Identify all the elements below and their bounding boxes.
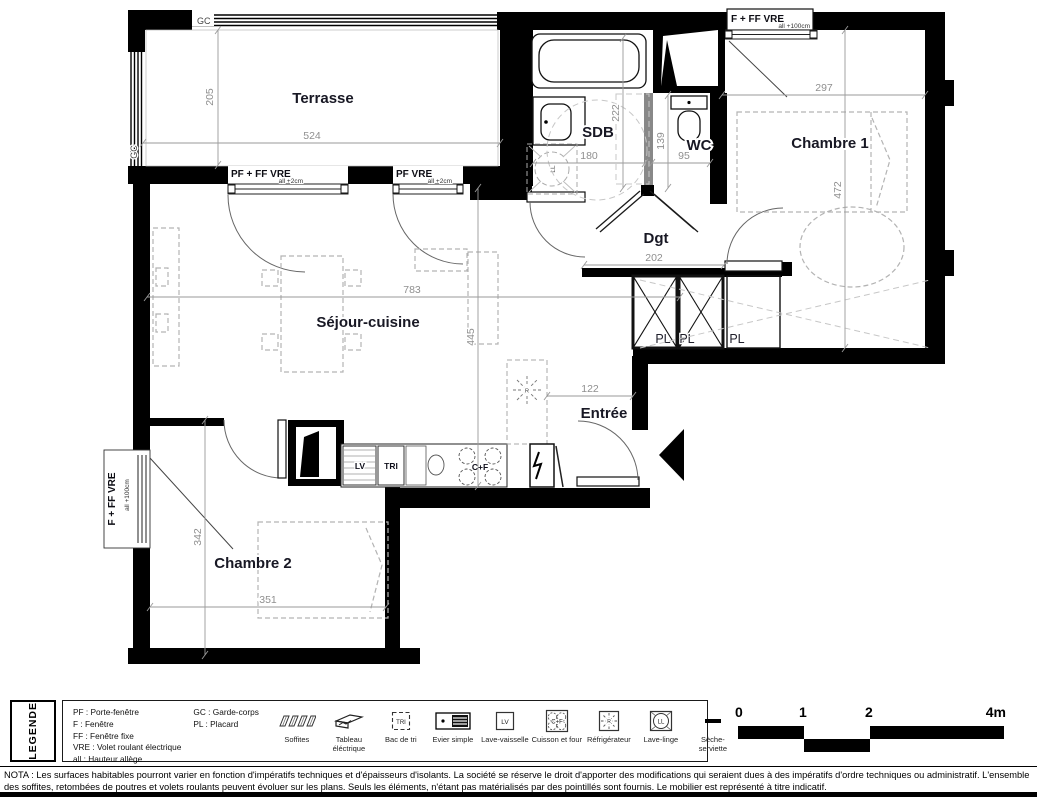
svg-text:LV: LV: [501, 719, 509, 726]
svg-text:342: 342: [192, 528, 204, 546]
dishwasher-icon: LV: [495, 708, 515, 733]
bottom-border: [0, 792, 1037, 797]
legend-title: LEGENDE: [27, 702, 39, 760]
stove-oven-icon: C+F: [545, 708, 569, 733]
room-label-wc: WC: [687, 137, 712, 154]
svg-text:139: 139: [655, 132, 667, 150]
bathtub: [532, 34, 646, 88]
legend-item-soffites: Soffites: [271, 708, 323, 744]
scale-segment: [738, 726, 804, 739]
sink-icon: [435, 708, 471, 733]
door-entree: [577, 421, 639, 486]
legend-item-tri: TRI Bac de tri: [375, 708, 427, 744]
svg-text:783: 783: [403, 284, 421, 296]
scale-tick-0: 0: [735, 704, 743, 720]
legend-item-tableau: Tableau éléctrique: [323, 708, 375, 753]
entrance-arrow: [659, 429, 684, 481]
room-label-sdb: SDB: [582, 124, 614, 141]
svg-text:F + FF VRE: F + FF VRE: [731, 14, 784, 25]
room-label-sejour: Séjour-cuisine: [316, 314, 419, 331]
scale-tick-4m: 4m: [986, 704, 1006, 720]
washer-sdb: LL: [527, 144, 577, 194]
floor-plan: GC GC PF + FF VRE all +2cm PF VRE all +2…: [0, 0, 1037, 698]
electrical-panel-icon: [334, 708, 364, 733]
scale-bar: 0 1 2 4m: [738, 704, 1004, 756]
svg-text:R: R: [607, 719, 611, 725]
door-sdb: [527, 192, 585, 257]
scale-tick-2: 2: [865, 704, 873, 720]
chambre1-furniture: [640, 112, 930, 348]
svg-text:all +100cm: all +100cm: [124, 479, 131, 511]
pl-label-3: PL: [729, 332, 744, 346]
legend-item-cuisson: C+F Cuisson et four: [531, 708, 583, 744]
svg-text:R: R: [525, 389, 529, 395]
svg-text:351: 351: [259, 594, 277, 606]
nota-text: NOTA : Les surfaces habitables pourront …: [4, 770, 1034, 794]
room-label-terrasse: Terrasse: [292, 90, 353, 107]
washing-machine-icon: LL: [649, 708, 673, 733]
svg-text:TRI: TRI: [396, 720, 406, 726]
cooktop-label: C+F: [472, 462, 488, 472]
svg-text:122: 122: [581, 383, 599, 395]
dishwasher-label: LV: [355, 461, 366, 471]
svg-text:222: 222: [610, 104, 622, 122]
room-label-chambre2: Chambre 2: [214, 555, 292, 572]
legend-title-box: LEGENDE: [10, 700, 56, 762]
gc-left-label: GC: [129, 145, 139, 159]
nota-line-1: NOTA : Les surfaces habitables pourront …: [4, 770, 1034, 782]
scale-tick-1: 1: [799, 704, 807, 720]
svg-text:445: 445: [465, 328, 477, 346]
recycling-label: TRI: [384, 461, 398, 471]
fridge: R: [507, 360, 547, 444]
soffites-icon: [278, 708, 316, 733]
sejour-furniture: [153, 228, 498, 372]
svg-text:C+F: C+F: [551, 719, 563, 725]
towel-dryer-icon: [705, 708, 721, 733]
legend-item-lv: LV Lave-vaisselle: [479, 708, 531, 744]
legend-item-lavelinge: LL Lave-linge: [635, 708, 687, 744]
legend-item-seche: Sèche-serviette: [687, 708, 739, 753]
svg-text:all +2cm: all +2cm: [428, 178, 452, 185]
legend-items: Soffites Tableau éléctrique TRI Bac de t…: [271, 708, 739, 753]
scale-segment: [870, 726, 1004, 739]
svg-text:205: 205: [204, 88, 216, 106]
svg-text:LL: LL: [658, 719, 665, 725]
duct-wc: [653, 25, 725, 93]
svg-text:472: 472: [832, 181, 844, 199]
kitchen-counter: LV TRI C+F: [341, 444, 507, 487]
room-label-entree: Entrée: [581, 405, 628, 422]
legend-item-frigo: R Réfrigérateur: [583, 708, 635, 744]
legend-item-evier: Evier simple: [427, 708, 479, 744]
legend-abbreviations-col2: GC : Garde-corps PL : Placard: [193, 707, 258, 731]
svg-text:202: 202: [645, 252, 663, 264]
svg-text:F + FF VRE: F + FF VRE: [107, 472, 118, 525]
window-chambre1: F + FF VRE all +100cm: [725, 9, 817, 97]
gc-top-label: GC: [197, 16, 211, 26]
svg-text:LL: LL: [550, 165, 557, 173]
door-chambre2: [224, 420, 286, 478]
duct-kitchen: [288, 420, 344, 486]
room-label-chambre1: Chambre 1: [791, 135, 869, 152]
svg-text:all +2cm: all +2cm: [279, 178, 303, 185]
legend-panel: PF : Porte-fenêtre F : Fenêtre FF : Fenê…: [62, 700, 708, 762]
window-chambre2: F + FF VRE all +100cm: [104, 450, 233, 549]
room-label-dgt: Dgt: [644, 230, 669, 247]
svg-text:297: 297: [815, 82, 833, 94]
svg-text:524: 524: [303, 130, 321, 142]
fridge-icon: R: [598, 708, 620, 733]
door-wc-double: [596, 191, 698, 232]
electrical-panel: [530, 444, 563, 487]
nota-divider: [0, 766, 1037, 767]
pl-label-2: PL: [679, 332, 694, 346]
toilet: [671, 96, 707, 141]
legend-abbreviations-col1: PF : Porte-fenêtre F : Fenêtre FF : Fenê…: [73, 707, 181, 766]
pl-label-1: PL: [655, 332, 670, 346]
recycling-bin-icon: TRI: [391, 708, 411, 733]
svg-text:all +100cm: all +100cm: [778, 23, 810, 30]
svg-text:180: 180: [580, 150, 598, 162]
door-chambre1: [725, 208, 783, 271]
scale-segment: [804, 739, 870, 752]
